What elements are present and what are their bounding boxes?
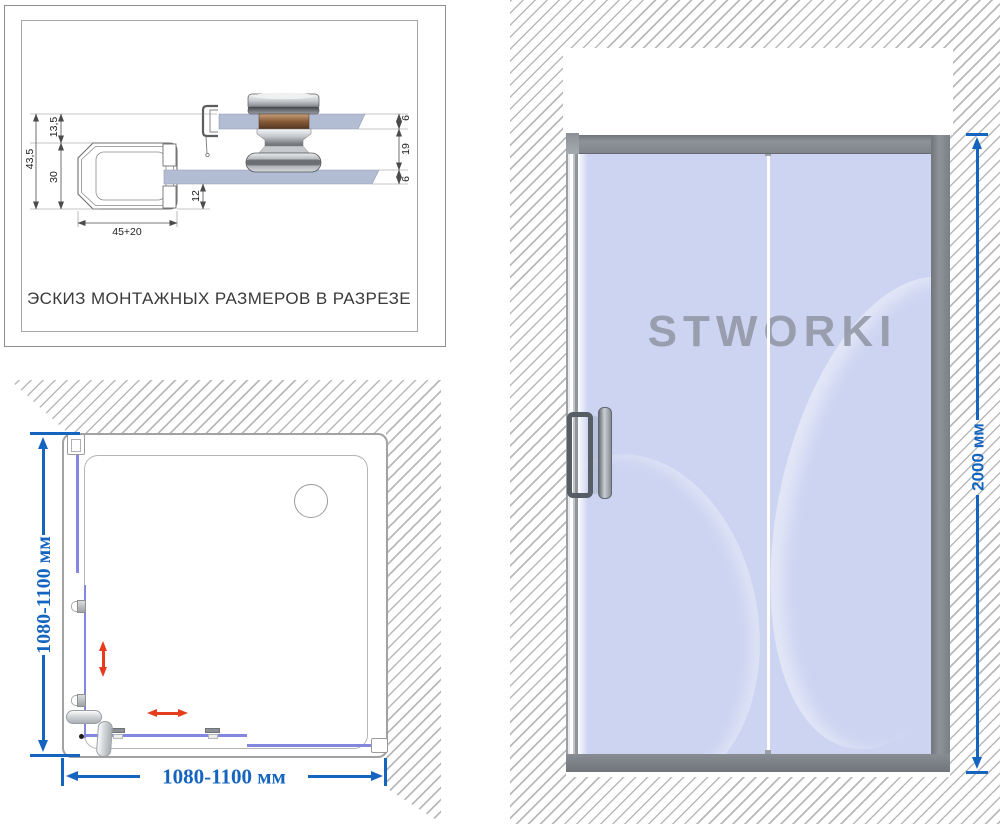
front-top-clearance xyxy=(563,48,953,135)
front-height-line-bottom xyxy=(976,495,979,760)
corner-fitting-inner xyxy=(71,439,81,452)
roller-fitting-right xyxy=(205,728,221,739)
below-door-gap xyxy=(566,772,950,777)
plan-depth-label: 1080-1100 мм xyxy=(34,536,54,654)
front-height-line-top xyxy=(976,148,979,420)
plan-width-arrow-left xyxy=(66,771,78,781)
end-fitting xyxy=(371,738,388,753)
door-handle-bracket xyxy=(567,412,593,498)
dim-glass-bottom-thickness: 6 xyxy=(401,176,412,182)
slide-arrow-horizontal-left xyxy=(147,709,157,717)
slide-arrow-horizontal-right xyxy=(178,709,188,717)
dim-profile-width: 45+20 xyxy=(112,227,142,238)
plan-width-arrow-right xyxy=(371,771,383,781)
section-view-panel: 43,5 13,5 30 45+20 12 6 19 6 ЭСКИЗ МОНТА… xyxy=(4,5,446,347)
door-top-rail-cap xyxy=(566,133,579,154)
glass-line-bottom-outer xyxy=(247,744,375,747)
slide-arrow-vertical-up xyxy=(99,641,107,651)
dim-overall-height: 43,5 xyxy=(25,149,36,169)
plan-depth-line-bottom xyxy=(42,655,45,747)
plan-depth-tick-bottom xyxy=(30,754,80,757)
roller-assembly xyxy=(246,93,321,172)
dim-upper-offset: 13,5 xyxy=(49,117,60,137)
glass-line-left-outer xyxy=(76,439,79,573)
front-height-tick-top xyxy=(966,133,988,136)
front-height-label: 2000 мм xyxy=(970,423,987,491)
plan-depth-line-top xyxy=(42,447,45,535)
handle-plan-horizontal xyxy=(66,710,102,724)
plan-width-tick-left xyxy=(61,758,64,786)
section-caption: ЭСКИЗ МОНТАЖНЫХ РАЗМЕРОВ В РАЗРЕЗЕ xyxy=(27,289,411,309)
pivot-dot xyxy=(79,734,84,739)
dim-profile-height: 30 xyxy=(49,171,60,183)
plan-width-label: 1080-1100 мм xyxy=(162,767,286,788)
door-handle-bar xyxy=(598,407,612,499)
glass-panels-front xyxy=(578,153,931,754)
slide-arrow-horizontal-shaft xyxy=(156,712,178,715)
shower-door-front: STWORKI xyxy=(566,135,950,772)
front-height-arrow-down xyxy=(972,757,982,769)
plan-depth-arrow-up xyxy=(38,437,48,449)
front-height-arrow-up xyxy=(972,137,982,149)
technical-drawing-sheet: 43,5 13,5 30 45+20 12 6 19 6 ЭСКИЗ МОНТА… xyxy=(0,0,1000,824)
plan-width-line-left xyxy=(78,775,140,778)
plan-width-line-right xyxy=(308,775,372,778)
door-right-frame xyxy=(931,135,950,772)
wall-clip-fitting-lower xyxy=(71,694,87,706)
wall-clip-fitting-upper xyxy=(71,600,87,612)
glass-clamp-bracket xyxy=(203,106,218,157)
dim-panel-gap: 19 xyxy=(401,143,412,155)
plan-width-tick-right xyxy=(384,758,387,786)
slide-arrow-vertical-down xyxy=(99,667,107,677)
front-height-tick-bottom xyxy=(966,771,988,774)
dim-glass-top-thickness: 6 xyxy=(401,115,412,121)
plan-depth-tick-top xyxy=(30,432,80,435)
door-top-rail xyxy=(566,135,950,154)
dim-glass-inset: 12 xyxy=(191,190,202,202)
slide-arrow-vertical-shaft xyxy=(102,650,105,668)
drain-circle xyxy=(294,484,328,518)
plan-depth-arrow-down xyxy=(38,740,48,752)
front-watermark: STWORKI xyxy=(596,307,949,357)
door-bottom-rail xyxy=(566,754,950,772)
wall-profile-section xyxy=(78,143,177,209)
panel-divider xyxy=(767,153,770,754)
handle-plan-vertical xyxy=(96,721,113,758)
